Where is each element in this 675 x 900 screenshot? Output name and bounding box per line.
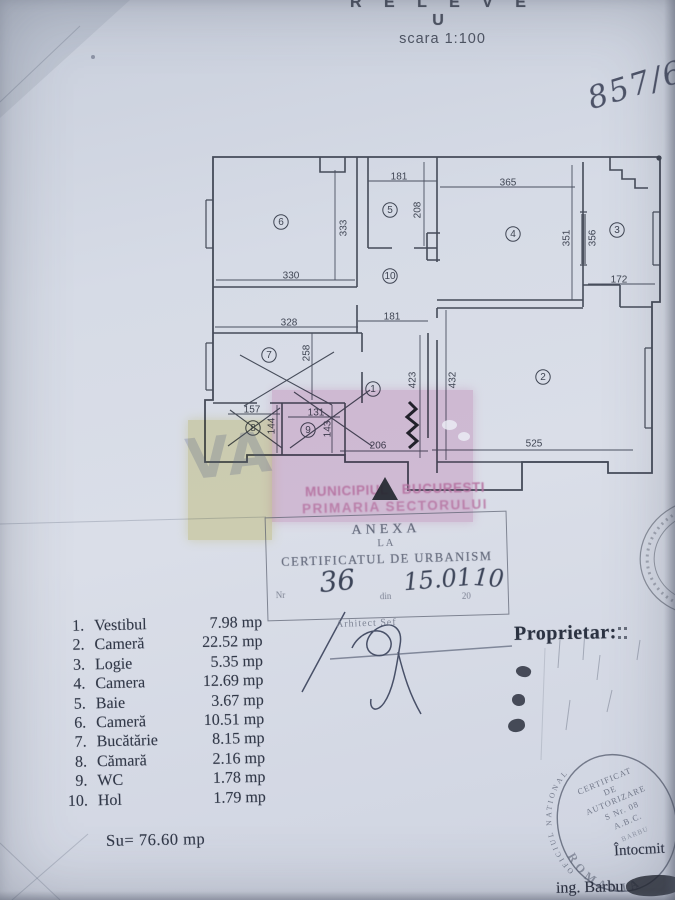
dimension-label: 356: [588, 229, 599, 246]
dimension-label: 525: [526, 439, 543, 450]
room-area: 2.16 mp: [185, 749, 265, 770]
room-marker-number: 6: [278, 217, 284, 228]
room-name: Cameră: [96, 711, 184, 732]
year-prefix: 20: [462, 591, 471, 601]
room-area: 8.15 mp: [184, 729, 264, 750]
room-area: 10.51 mp: [184, 710, 264, 731]
room-number: 2.: [50, 636, 94, 656]
room-marker-number: 5: [387, 205, 393, 216]
room-marker-number: 4: [510, 229, 516, 240]
dimension-label: 423: [408, 371, 419, 388]
architect-label: Arhitect Sef: [336, 617, 397, 630]
scanned-document-page: 1812083653513561723333303281812584234321…: [0, 0, 675, 900]
dimension-label: 258: [302, 344, 313, 361]
room-name: Camera: [95, 673, 183, 694]
year-value-handwritten: 10: [472, 563, 505, 593]
dimension-label: 181: [384, 312, 401, 323]
room-number: 9.: [53, 771, 97, 791]
dimension-label: 365: [500, 178, 517, 189]
room-number: 6.: [52, 713, 96, 733]
total-area: Su= 76.60 mp: [106, 829, 206, 851]
dimension-label: 333: [339, 219, 350, 236]
ink-blob: [512, 694, 525, 706]
room-number: 7.: [52, 733, 96, 753]
room-number: 3.: [51, 655, 95, 675]
room-marker-number: 10: [384, 271, 396, 282]
scan-spot: [458, 432, 470, 441]
dimension-label: 432: [448, 371, 459, 388]
ink-dots: [618, 627, 627, 639]
anexa-number-row: Nr 36 din 15.01 20 10: [267, 566, 508, 613]
room-area: 7.98 mp: [182, 613, 262, 634]
pen-scratches: [541, 630, 640, 760]
dimension-label: 172: [611, 275, 628, 286]
document-title: R E L E V E U: [340, 0, 545, 30]
title-block: R E L E V E U scara 1:100: [340, 0, 545, 47]
dimension-label: 330: [283, 271, 300, 282]
room-number: 10.: [54, 791, 98, 811]
room-name: Baie: [96, 692, 184, 713]
room-area: 1.78 mp: [185, 768, 265, 789]
partial-edge-stamp: [631, 489, 675, 625]
architect-signature: [302, 612, 512, 714]
anexa-stamp-box: ANEXA LA CERTIFICATUL DE URBANISM Nr 36 …: [265, 511, 510, 622]
dimension-label: 351: [562, 229, 573, 246]
room-list: 1.Vestibul7.98 mp2.Cameră22.52 mp3.Logie…: [50, 613, 266, 811]
room-name: Vestibul: [94, 614, 182, 635]
din-label: din: [380, 591, 392, 601]
owner-label: Proprietar:: [514, 621, 617, 646]
room-area: 1.79 mp: [186, 787, 266, 808]
room-name: Logie: [95, 653, 183, 674]
corner-dot: [656, 155, 661, 160]
room-number: 1.: [50, 616, 94, 636]
room-area: 3.67 mp: [184, 690, 264, 711]
room-number: 5.: [52, 694, 96, 714]
watermark-yellow-patch: [188, 420, 272, 540]
dimension-label: 181: [391, 172, 408, 183]
room-name: Bucătărie: [96, 731, 184, 752]
corner-shade: [0, 0, 130, 118]
stamp-center-lines: CERTIFICATDEAUTORIZARES Nr. 08A.B.C.BARB…: [576, 763, 662, 853]
room-name: Hol: [98, 789, 186, 810]
prepared-by-label: Întocmit: [614, 841, 666, 861]
scan-spot: [442, 420, 457, 430]
watermark-triangle-icon: [372, 477, 398, 500]
dimension-label: 157: [244, 405, 261, 416]
room-name: WC: [97, 770, 185, 791]
nr-label: Nr: [276, 590, 286, 600]
room-area: 22.52 mp: [182, 632, 262, 653]
room-number: 4.: [51, 674, 95, 694]
room-name: Cameră: [94, 634, 182, 655]
paper-speck: [91, 55, 95, 59]
engineer-name: ing. Barbu: [556, 878, 624, 898]
room-marker-number: 3: [614, 225, 620, 236]
room-area: 12.69 mp: [183, 671, 263, 692]
room-number: 8.: [53, 752, 97, 772]
dimension-label: 328: [281, 318, 298, 329]
room-area: 5.35 mp: [183, 652, 263, 673]
document-scale: scara 1:100: [340, 31, 545, 47]
nr-value-handwritten: 36: [318, 563, 357, 599]
room-marker-number: 2: [540, 372, 546, 383]
dimension-label: 208: [413, 201, 424, 218]
room-name: Cămară: [97, 750, 185, 771]
window-dark-fill: [581, 214, 586, 264]
room-marker-number: 7: [266, 350, 272, 361]
